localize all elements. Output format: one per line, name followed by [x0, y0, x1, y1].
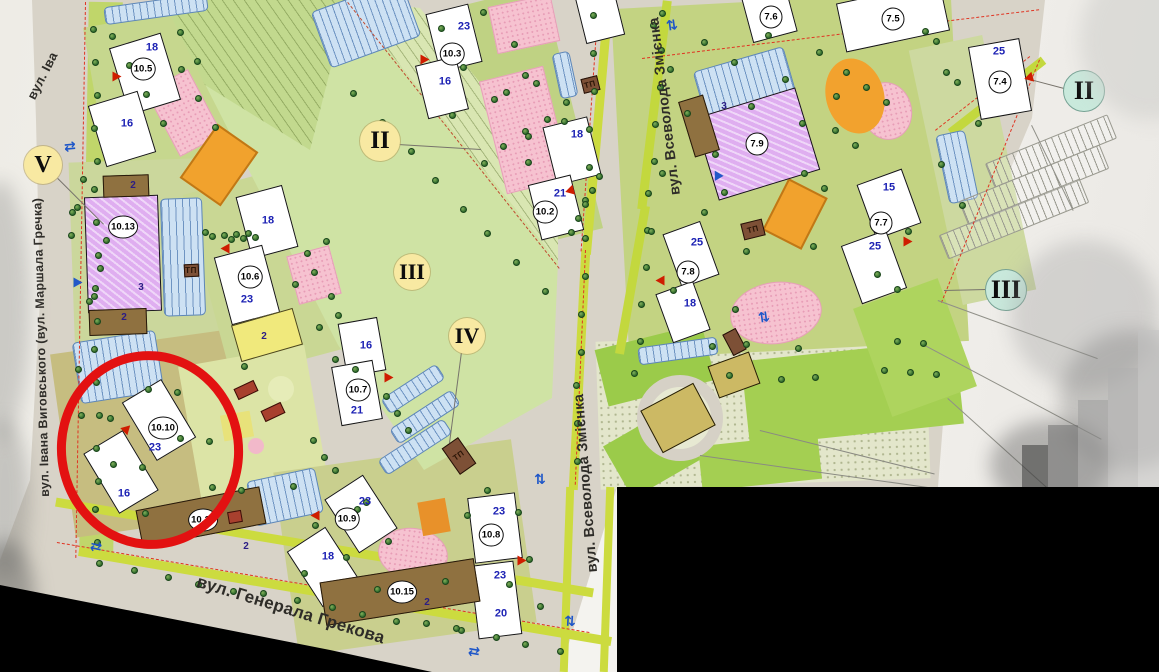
tree-icon: [460, 64, 467, 71]
tree-icon: [799, 120, 806, 127]
pixel-step-texture: [1022, 445, 1048, 487]
tree-icon: [332, 356, 339, 363]
tree-icon: [812, 374, 819, 381]
tree-icon: [91, 293, 98, 300]
pixel-step-texture: [1108, 368, 1138, 487]
pixel-step-texture: [1078, 400, 1108, 487]
floor-count-label: 18: [684, 299, 696, 310]
building-number-badge: 10.13: [108, 216, 138, 239]
entrance-marker-icon: [385, 373, 394, 383]
building-number-badge: 7.8: [677, 261, 700, 284]
parking-lot: [160, 197, 206, 316]
tree-icon: [575, 215, 582, 222]
tree-icon: [511, 41, 518, 48]
entrance-marker-icon: [113, 72, 122, 82]
tree-icon: [557, 648, 564, 655]
floor-count-label: 16: [360, 341, 372, 352]
site-plan-map: 1816231618211823162123162318232320251525…: [0, 0, 1159, 672]
play-structure: [417, 498, 450, 536]
tree-icon: [359, 611, 366, 618]
traffic-arrows-icon: ⇅: [534, 472, 546, 488]
tree-icon: [383, 393, 390, 400]
floor-count-label: 15: [883, 183, 895, 194]
traffic-arrows-icon: ⇄: [63, 139, 76, 156]
tree-icon: [94, 158, 101, 165]
tree-icon: [328, 293, 335, 300]
tree-icon: [292, 281, 299, 288]
tree-icon: [743, 248, 750, 255]
tree-icon: [312, 522, 319, 529]
tree-icon: [684, 110, 691, 117]
transformer-label: ТП: [185, 267, 197, 275]
tree-icon: [590, 12, 597, 19]
annex-storey-label: 2: [261, 332, 267, 342]
tree-icon: [329, 604, 336, 611]
tree-icon: [701, 209, 708, 216]
tree-icon: [221, 232, 228, 239]
tree-icon: [701, 39, 708, 46]
tree-icon: [938, 161, 945, 168]
tree-icon: [442, 578, 449, 585]
entrance-marker-icon: [421, 55, 430, 65]
tree-icon: [801, 170, 808, 177]
tree-icon: [631, 370, 638, 377]
floor-count-label: 16: [121, 119, 133, 130]
tree-icon: [304, 250, 311, 257]
building-number-badge: 10.5: [131, 58, 156, 81]
building-number-badge: 10.7: [346, 379, 371, 402]
tree-icon: [252, 234, 259, 241]
tree-icon: [311, 269, 318, 276]
tree-icon: [563, 99, 570, 106]
tree-icon: [537, 603, 544, 610]
floor-count-label: 20: [495, 609, 507, 620]
building-number-badge: 10.6: [238, 266, 263, 289]
tree-icon: [178, 66, 185, 73]
tree-icon: [103, 237, 110, 244]
tree-icon: [385, 538, 392, 545]
traffic-arrows-icon: ⇄: [467, 643, 481, 661]
tree-icon: [75, 366, 82, 373]
tree-icon: [596, 173, 603, 180]
building-number-badge: 10.15: [387, 581, 417, 604]
floor-count-label: 18: [146, 43, 158, 54]
floor-count-label: 25: [691, 238, 703, 249]
tree-icon: [131, 567, 138, 574]
tree-icon: [670, 287, 677, 294]
tree-icon: [493, 634, 500, 641]
tree-icon: [96, 560, 103, 567]
tree-icon: [778, 376, 785, 383]
entrance-marker-icon: [518, 556, 527, 566]
tree-icon: [709, 343, 716, 350]
traffic-arrows-icon: ⇅: [665, 17, 679, 34]
annex-storey-label: 2: [130, 181, 136, 191]
floor-count-label: 18: [322, 552, 334, 563]
tree-icon: [332, 467, 339, 474]
building-number-badge: 10.3: [440, 43, 465, 66]
tree-icon: [438, 25, 445, 32]
tree-icon: [732, 306, 739, 313]
tree-icon: [582, 235, 589, 242]
tree-icon: [843, 69, 850, 76]
traffic-arrows-icon: ⇅: [564, 614, 577, 631]
tree-icon: [525, 133, 532, 140]
tree-icon: [480, 9, 487, 16]
tree-icon: [832, 127, 839, 134]
tree-icon: [449, 112, 456, 119]
tree-icon: [515, 509, 522, 516]
tree-icon: [310, 437, 317, 444]
tree-icon: [586, 126, 593, 133]
annex-storey-label: 2: [424, 598, 430, 608]
tree-icon: [975, 120, 982, 127]
tree-icon: [481, 160, 488, 167]
tree-icon: [648, 228, 655, 235]
building-number-badge: 10.8: [479, 524, 504, 547]
tree-icon: [335, 312, 342, 319]
tree-icon: [954, 79, 961, 86]
tree-icon: [526, 556, 533, 563]
building-number-badge: 10.2: [533, 201, 558, 224]
entrance-marker-icon: [904, 237, 913, 247]
entrance-marker-icon: [311, 511, 320, 521]
tree-icon: [202, 229, 209, 236]
building-number-badge: 7.6: [760, 6, 783, 29]
tree-icon: [933, 38, 940, 45]
floor-count-label: 23: [241, 295, 253, 306]
tree-icon: [874, 271, 881, 278]
tree-icon: [95, 252, 102, 259]
tree-icon: [453, 625, 460, 632]
pixel-step-texture: [1138, 330, 1159, 487]
section-marker-iii: III: [394, 254, 430, 290]
tree-icon: [321, 454, 328, 461]
floor-count-label: 16: [439, 77, 451, 88]
entrance-marker-icon: [74, 278, 83, 288]
garden-circle: [248, 438, 264, 454]
tree-icon: [394, 410, 401, 417]
section-marker-v: V: [24, 146, 62, 184]
tree-icon: [212, 124, 219, 131]
tree-icon: [405, 427, 412, 434]
pixel-step-texture: [1048, 425, 1078, 487]
tree-icon: [177, 29, 184, 36]
tree-icon: [209, 233, 216, 240]
kiosk: [227, 510, 243, 524]
building-number-badge: 10.9: [335, 508, 360, 531]
tree-icon: [374, 586, 381, 593]
tree-icon: [491, 96, 498, 103]
tree-icon: [238, 487, 245, 494]
tree-icon: [637, 338, 644, 345]
tree-icon: [506, 581, 513, 588]
tree-icon: [645, 190, 652, 197]
tree-icon: [525, 159, 532, 166]
tree-icon: [561, 118, 568, 125]
tree-icon: [323, 238, 330, 245]
floor-count-label: 23: [359, 497, 371, 508]
tree-icon: [233, 231, 240, 238]
tree-icon: [638, 301, 645, 308]
tree-icon: [578, 349, 585, 356]
tree-icon: [810, 243, 817, 250]
tree-icon: [894, 338, 901, 345]
tree-icon: [726, 372, 733, 379]
building-number-badge: 7.7: [870, 212, 893, 235]
tree-icon: [464, 512, 471, 519]
tree-icon: [533, 80, 540, 87]
tree-icon: [943, 69, 950, 76]
tree-icon: [109, 33, 116, 40]
tree-icon: [894, 286, 901, 293]
tree-icon: [651, 158, 658, 165]
tree-icon: [589, 187, 596, 194]
paper-texture: [0, 180, 30, 440]
tree-icon: [816, 49, 823, 56]
section-marker-iv: IV: [449, 318, 485, 354]
floor-count-label: 23: [494, 571, 506, 582]
floor-count-label: 21: [351, 406, 363, 417]
tree-icon: [795, 345, 802, 352]
tree-icon: [743, 341, 750, 348]
tree-icon: [352, 366, 359, 373]
building-number-badge: 7.4: [989, 71, 1012, 94]
annex-10.13: [103, 174, 150, 198]
tree-icon: [301, 570, 308, 577]
tree-icon: [883, 99, 890, 106]
tree-icon: [765, 32, 772, 39]
tree-icon: [160, 120, 167, 127]
tree-icon: [91, 186, 98, 193]
section-marker-ii: II: [360, 121, 400, 161]
tree-icon: [881, 367, 888, 374]
tree-icon: [748, 103, 755, 110]
tree-icon: [143, 91, 150, 98]
tree-icon: [833, 93, 840, 100]
tree-icon: [408, 148, 415, 155]
annex-storey-label: 3: [721, 102, 727, 112]
tree-icon: [68, 232, 75, 239]
floor-count-label: 18: [571, 130, 583, 141]
tree-icon: [905, 228, 912, 235]
tree-icon: [90, 26, 97, 33]
tree-icon: [316, 324, 323, 331]
tree-icon: [731, 59, 738, 66]
tree-icon: [712, 151, 719, 158]
tree-icon: [343, 554, 350, 561]
floor-count-label: 23: [458, 22, 470, 33]
building-number-badge: 7.5: [882, 8, 905, 31]
garden-circle: [268, 376, 294, 402]
tree-icon: [907, 369, 914, 376]
tree-icon: [542, 288, 549, 295]
tree-icon: [350, 90, 357, 97]
tree-icon: [195, 95, 202, 102]
tree-icon: [568, 229, 575, 236]
annex-storey-label: 3: [138, 283, 144, 293]
tree-icon: [500, 143, 507, 150]
tree-icon: [432, 177, 439, 184]
tree-icon: [194, 58, 201, 65]
tree-icon: [863, 84, 870, 91]
tree-icon: [652, 121, 659, 128]
tree-icon: [852, 142, 859, 149]
tree-icon: [241, 363, 248, 370]
building-number-badge: 7.9: [746, 133, 769, 156]
tree-icon: [245, 230, 252, 237]
tree-icon: [484, 487, 491, 494]
entrance-marker-icon: [221, 244, 230, 254]
tree-icon: [97, 265, 104, 272]
floor-count-label: 21: [554, 189, 566, 200]
tree-icon: [290, 483, 297, 490]
tree-icon: [74, 204, 81, 211]
tree-icon: [582, 201, 589, 208]
tree-icon: [578, 311, 585, 318]
tree-icon: [591, 88, 598, 95]
traffic-arrows-icon: ⇅: [757, 309, 771, 326]
tree-icon: [920, 340, 927, 347]
tree-icon: [522, 72, 529, 79]
floor-count-label: 25: [869, 242, 881, 253]
tree-icon: [933, 371, 940, 378]
tree-icon: [503, 89, 510, 96]
floor-count-label: 25: [993, 47, 1005, 58]
tree-icon: [922, 28, 929, 35]
floor-count-label: 23: [493, 507, 505, 518]
floor-count-label: 18: [262, 216, 274, 227]
tree-icon: [80, 176, 87, 183]
tree-icon: [721, 189, 728, 196]
black-mask-bottom-right: [617, 487, 1159, 672]
entrance-marker-icon: [656, 276, 665, 286]
annex-storey-label: 2: [243, 542, 249, 552]
tree-icon: [782, 76, 789, 83]
annex-storey-label: 2: [121, 313, 127, 323]
tree-icon: [544, 116, 551, 123]
tree-icon: [959, 202, 966, 209]
tree-icon: [92, 285, 99, 292]
tree-icon: [821, 185, 828, 192]
